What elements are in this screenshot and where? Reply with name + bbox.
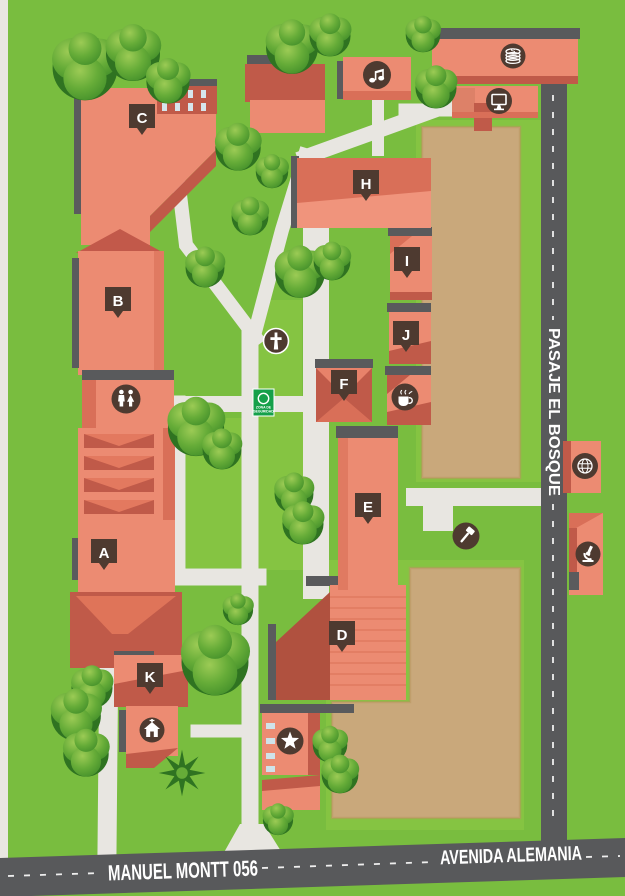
music-note-icon — [363, 61, 391, 89]
path-left-edge — [0, 0, 8, 862]
svg-text:I: I — [405, 253, 409, 270]
microscope-icon — [576, 542, 601, 567]
street-label-pasaje-el-bosque: PASAJE EL BOSQUE — [545, 328, 562, 496]
building-A — [72, 520, 175, 594]
svg-text:J: J — [402, 327, 410, 344]
street-label-manuel-montt: MANUEL MONTT 056 — [108, 856, 259, 886]
restrooms-icon — [112, 385, 141, 414]
svg-text:K: K — [145, 669, 156, 686]
svg-text:H: H — [361, 176, 372, 193]
computer-monitor-icon — [486, 88, 512, 114]
svg-text:C: C — [137, 110, 148, 127]
coins-icon: S — [501, 44, 526, 69]
coin-letter: S — [511, 49, 516, 56]
globe-icon — [572, 453, 598, 479]
safety-sign-line2: SEGURIDAD — [253, 410, 274, 414]
svg-text:B: B — [113, 293, 124, 310]
svg-text:D: D — [337, 627, 348, 644]
house-icon — [140, 718, 165, 743]
star-icon — [277, 728, 304, 755]
sports-field-north — [422, 127, 520, 478]
palm-tree — [159, 750, 206, 797]
svg-text:E: E — [363, 499, 373, 516]
gavel-icon — [453, 523, 480, 550]
map-canvas: PASAJE EL BOSQUE — [0, 0, 625, 896]
svg-text:F: F — [339, 376, 348, 393]
svg-text:A: A — [99, 545, 110, 562]
building-sawtooth-halls — [78, 428, 175, 522]
street-label-avenida-alemania: AVENIDA ALEMANIA — [440, 843, 583, 870]
coffee-cup-icon — [392, 384, 419, 411]
campus-map: PASAJE EL BOSQUE — [0, 0, 625, 896]
safety-zone-sign: ZONA DE SEGURIDAD — [253, 389, 274, 416]
cross-icon — [264, 329, 289, 354]
